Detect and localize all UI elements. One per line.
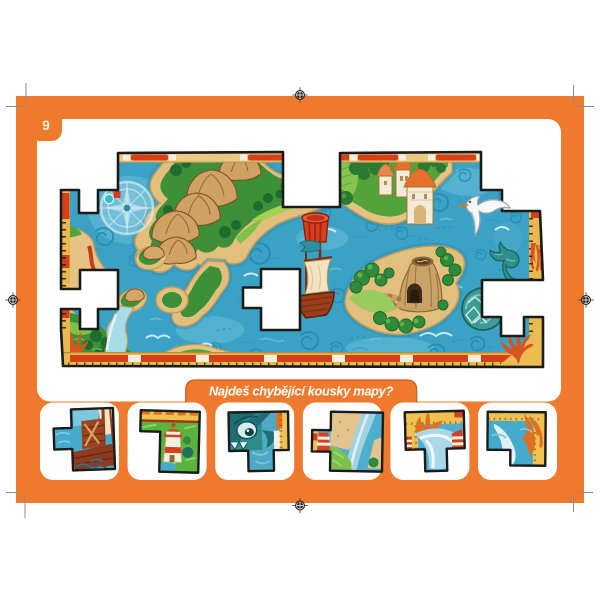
svg-text:9: 9: [42, 118, 50, 133]
svg-text:Najdeš chybějící kousky mapy?: Najdeš chybějící kousky mapy?: [209, 384, 394, 399]
